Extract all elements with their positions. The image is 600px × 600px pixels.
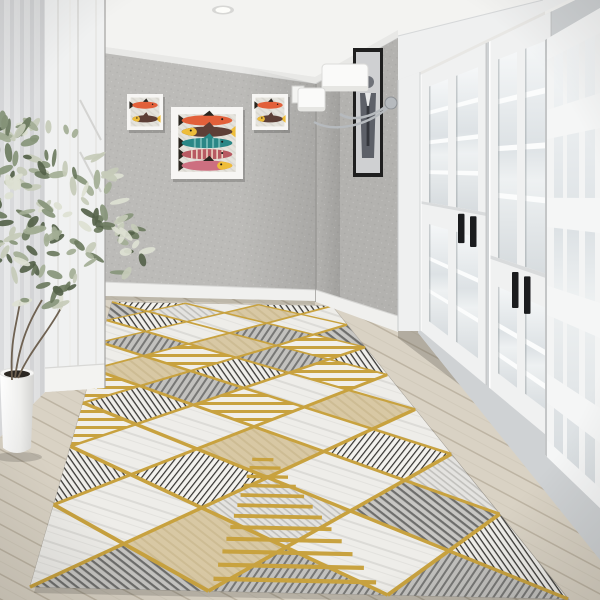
hallway-photo: [0, 0, 600, 600]
photo-vignette: [0, 0, 600, 600]
scene-svg: [0, 0, 600, 600]
